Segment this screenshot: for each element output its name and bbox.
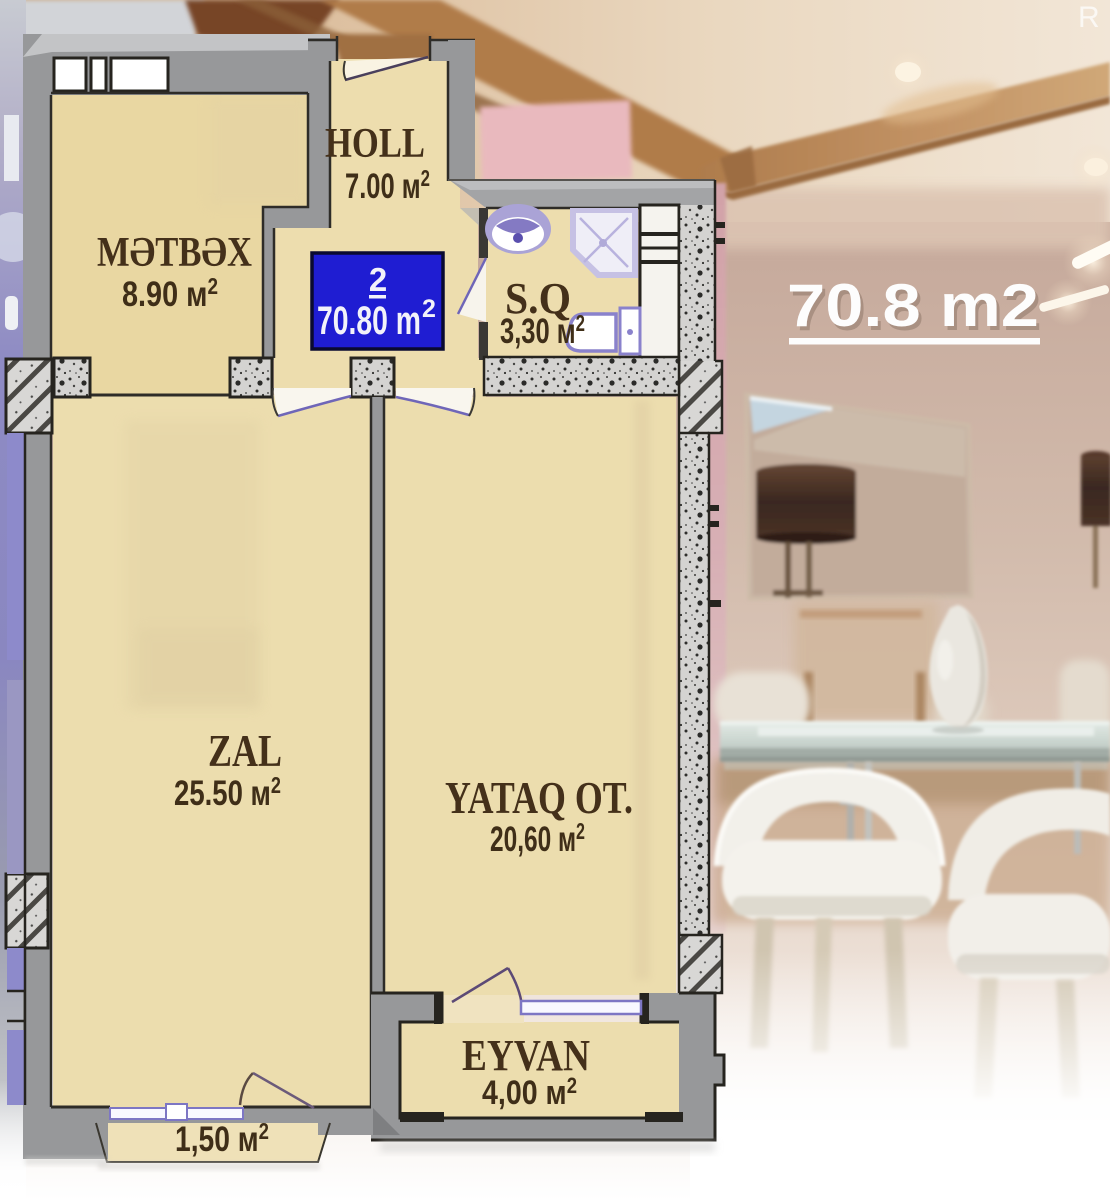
svg-text:2: 2 [369,261,387,298]
svg-text:MƏTBƏX: MƏTBƏX [97,230,252,276]
svg-text:1,50 м2: 1,50 м2 [175,1118,269,1159]
svg-text:7.00 м2: 7.00 м2 [345,165,430,206]
svg-text:ZAL: ZAL [208,725,282,776]
svg-text:70.80 m: 70.80 m [317,299,421,343]
svg-text:YATAQ OT.: YATAQ OT. [445,772,633,823]
svg-text:2: 2 [422,295,436,323]
svg-text:HOLL: HOLL [325,121,425,167]
svg-text:8.90 м2: 8.90 м2 [122,273,218,314]
svg-text:70.8 m2: 70.8 m2 [787,272,1039,339]
svg-text:3,30 м2: 3,30 м2 [500,310,585,351]
svg-text:4,00 м2: 4,00 м2 [482,1073,577,1112]
svg-text:R: R [1078,1,1100,34]
svg-text:25.50 м2: 25.50 м2 [174,772,281,813]
svg-text:20,60 м2: 20,60 м2 [490,818,585,859]
